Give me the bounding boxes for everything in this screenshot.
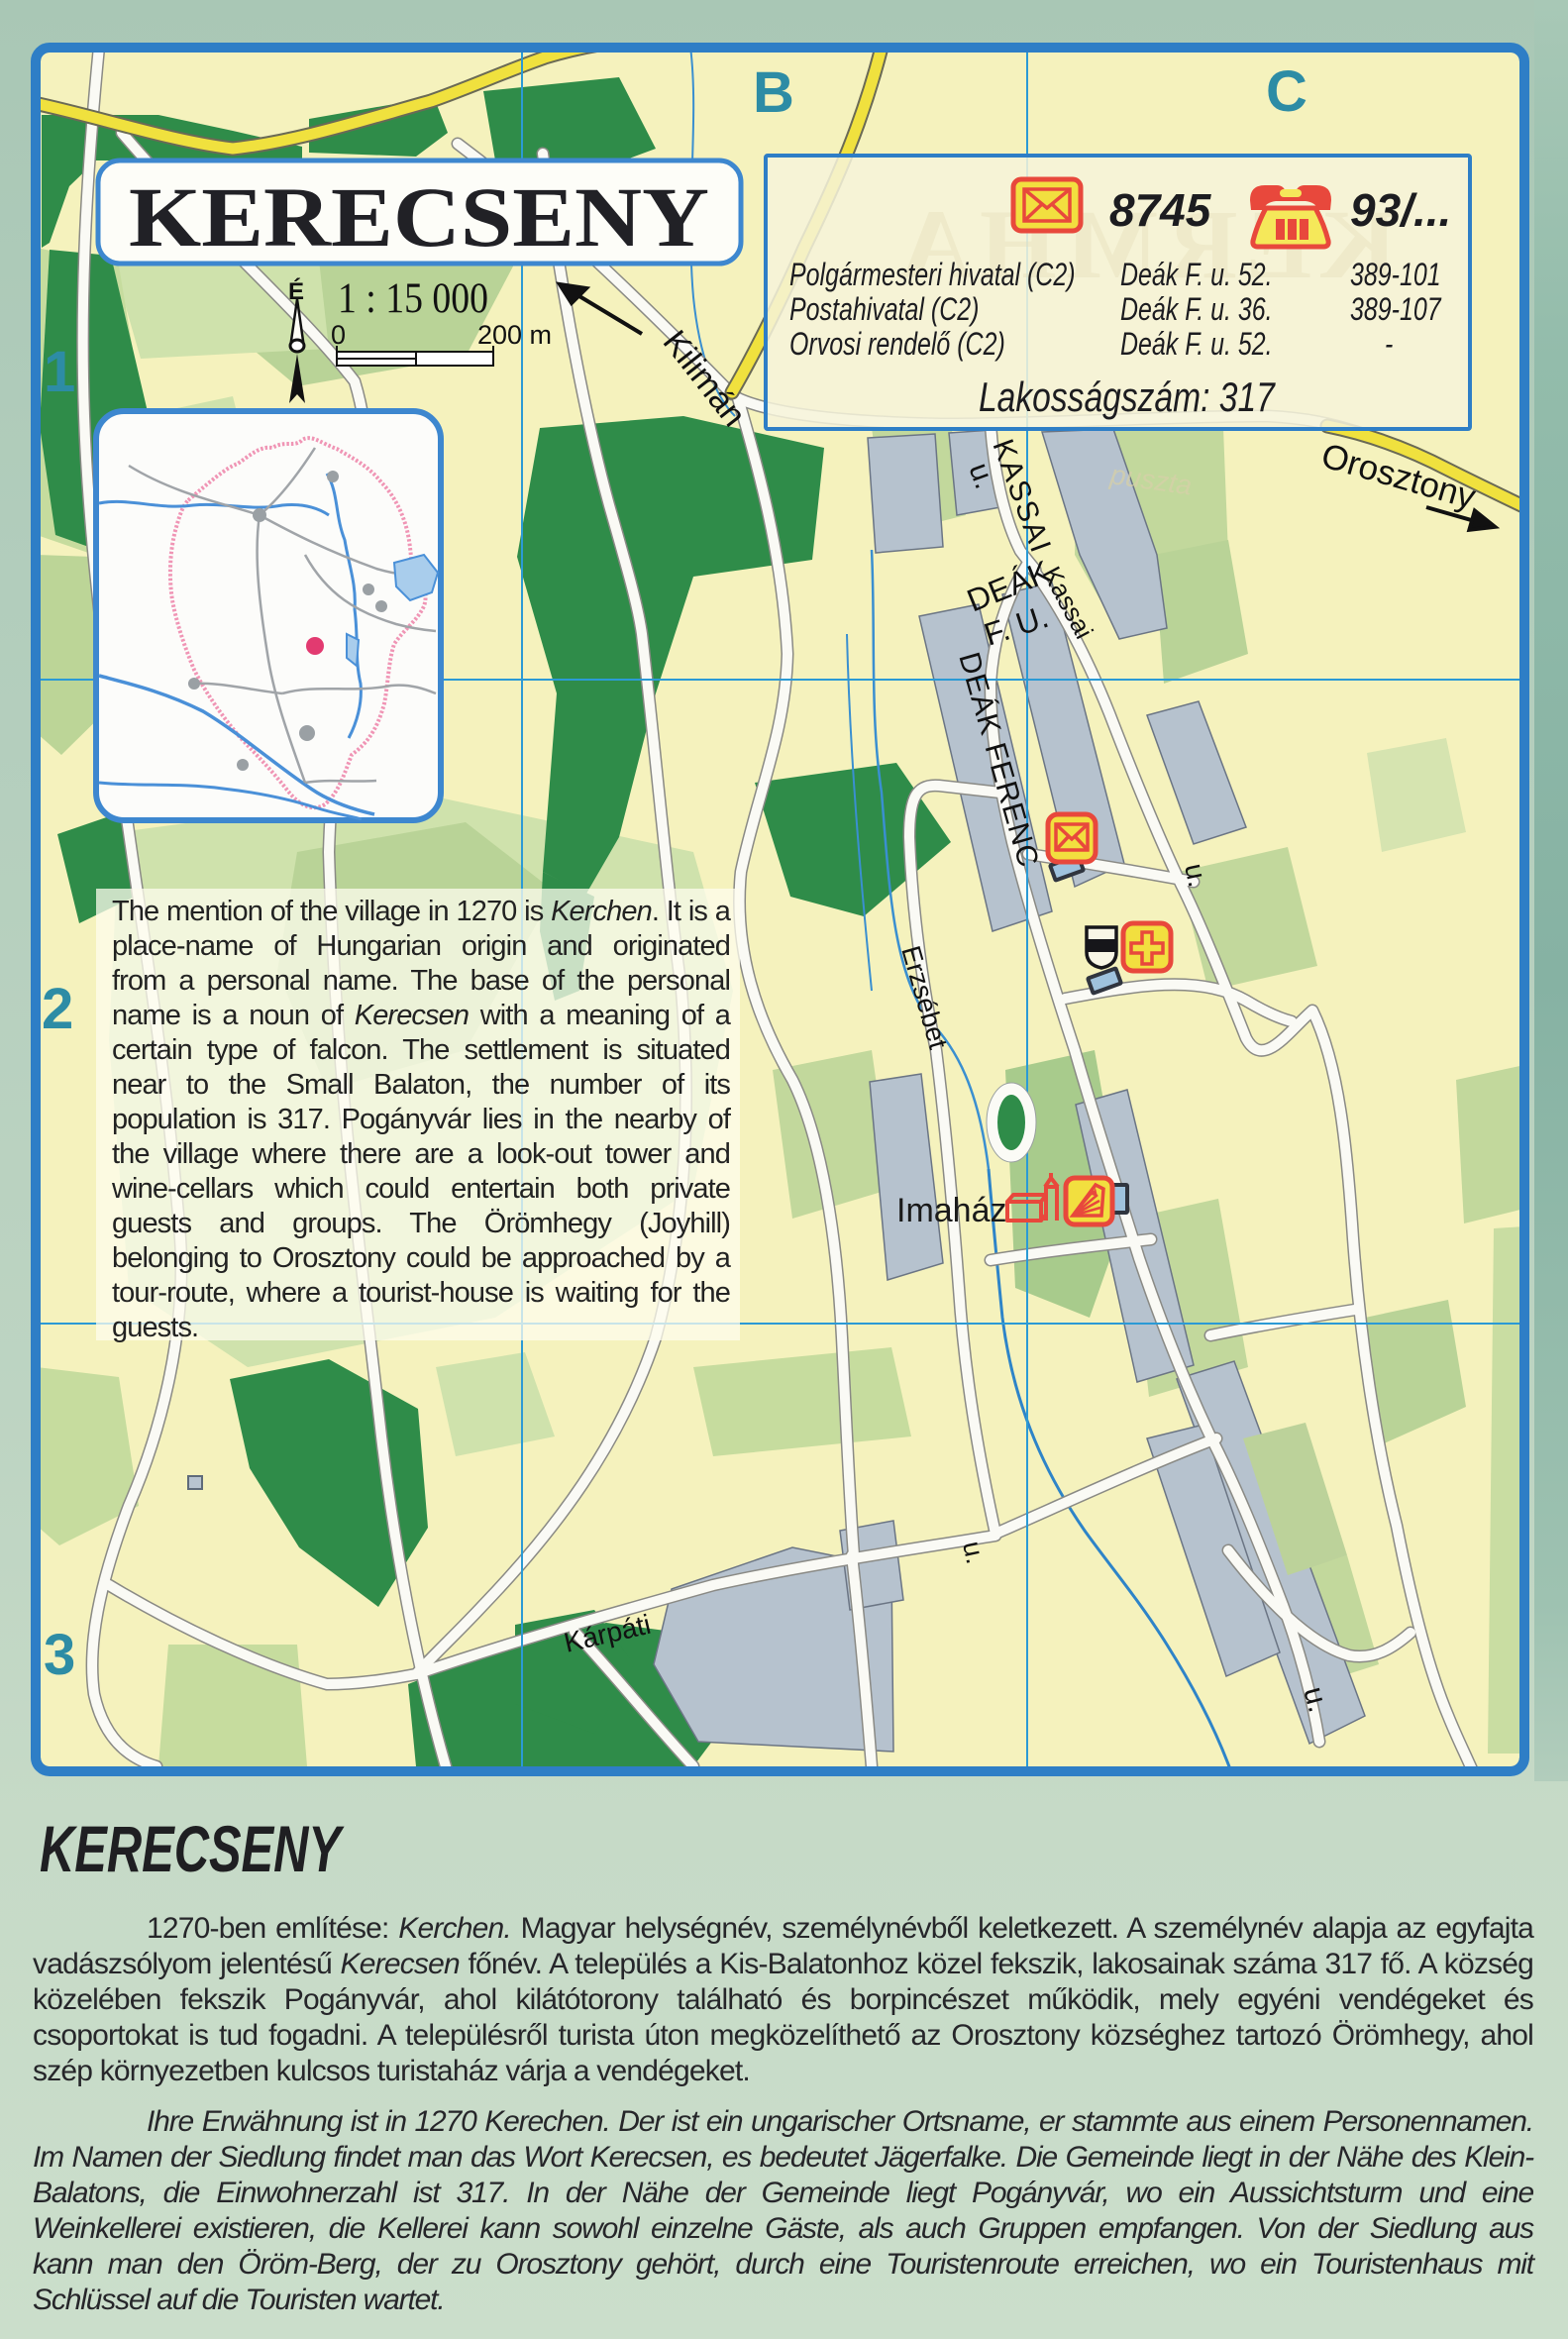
svg-text:93/...: 93/... xyxy=(1350,184,1451,236)
svg-text:0: 0 xyxy=(331,320,346,350)
svg-text:8745: 8745 xyxy=(1109,184,1212,236)
svg-text:C: C xyxy=(1266,59,1307,124)
svg-text:2: 2 xyxy=(42,977,73,1041)
svg-text:B: B xyxy=(753,60,794,125)
svg-text:200 m: 200 m xyxy=(477,320,552,350)
svg-text:3: 3 xyxy=(44,1623,75,1687)
svg-text:1: 1 xyxy=(44,340,75,404)
svg-text:Imaház: Imaház xyxy=(896,1192,1007,1229)
svg-text:1 : 15 000: 1 : 15 000 xyxy=(338,275,488,322)
svg-text:KERECSENY: KERECSENY xyxy=(129,169,709,265)
